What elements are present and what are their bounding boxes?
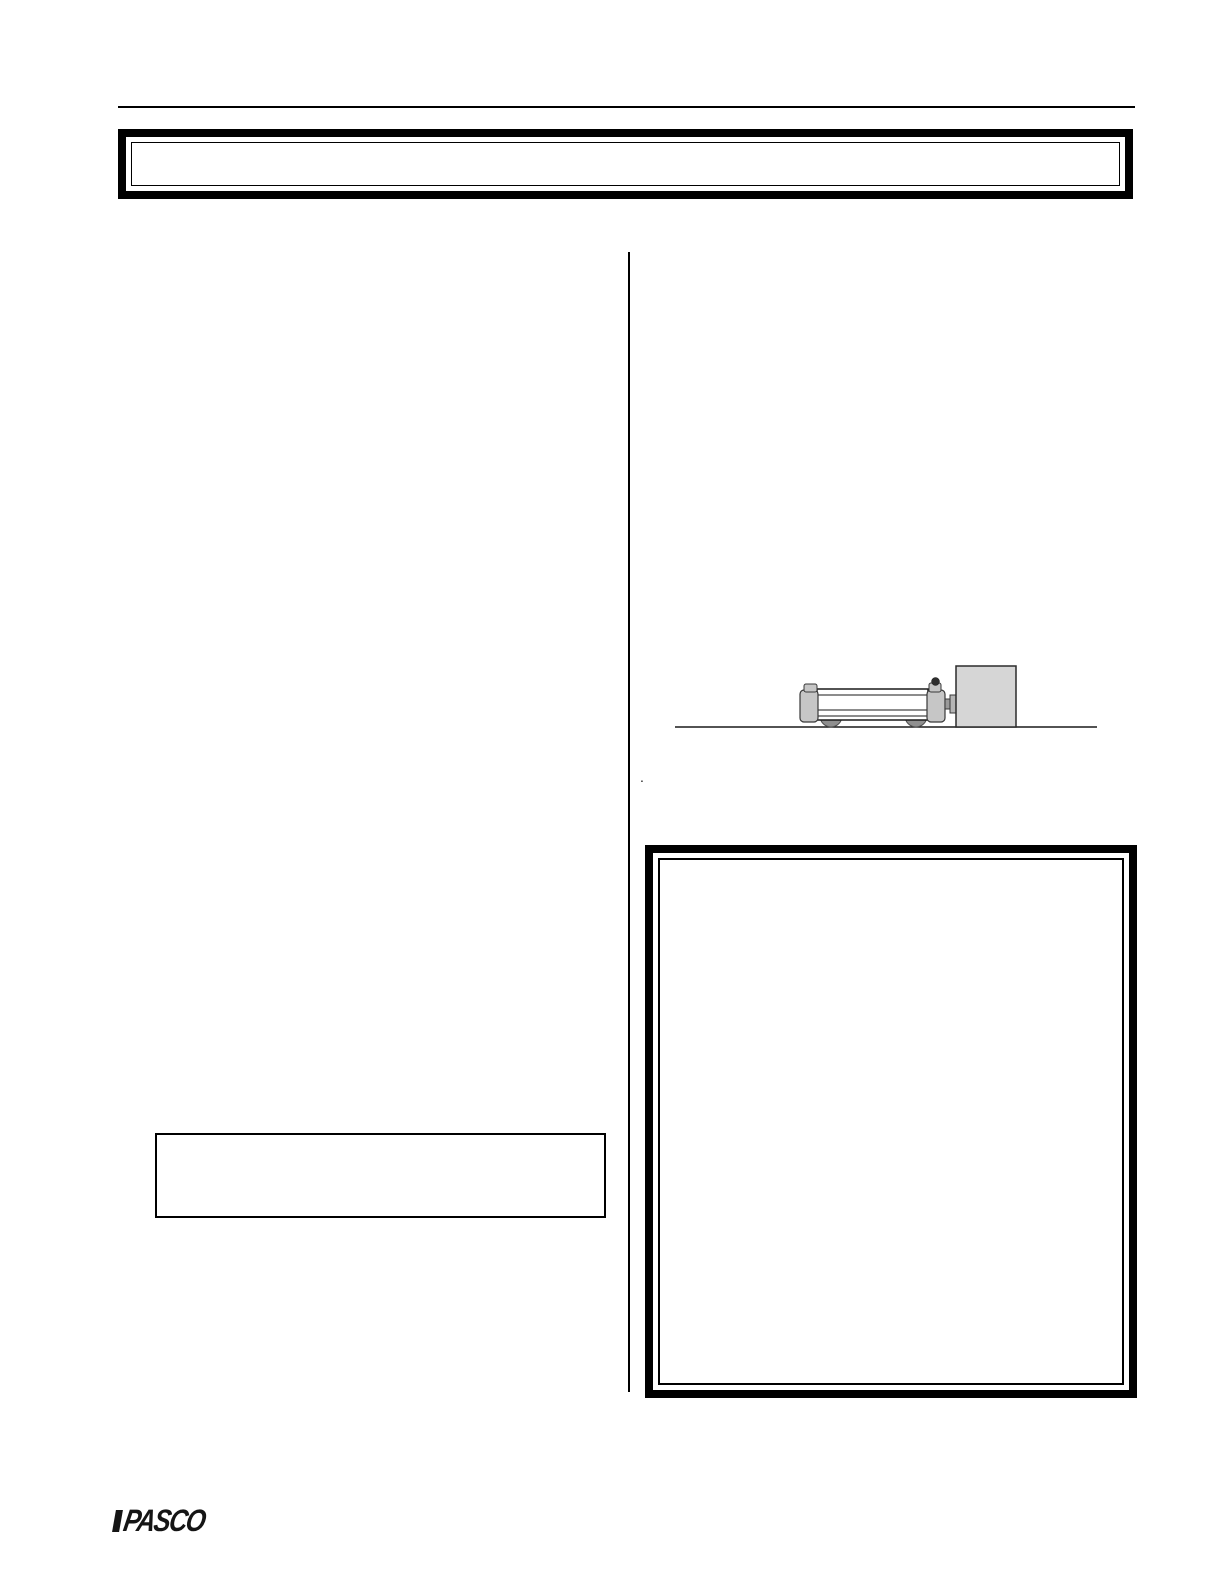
column-divider bbox=[628, 252, 630, 1392]
block bbox=[956, 666, 1016, 727]
cart-body bbox=[817, 689, 928, 720]
cart-endcap-right bbox=[927, 690, 945, 722]
header-rule bbox=[118, 106, 1135, 108]
pasco-logo-mark-icon bbox=[112, 1510, 123, 1532]
cart-tab-left bbox=[804, 684, 817, 692]
trigger-knob bbox=[932, 678, 940, 686]
title-banner bbox=[118, 129, 1133, 199]
left-callout-box bbox=[155, 1133, 606, 1218]
notes-box-inner bbox=[658, 858, 1124, 1385]
title-banner-inner bbox=[131, 142, 1120, 186]
plunger-rod bbox=[945, 699, 950, 709]
pasco-logo: PASCO bbox=[111, 1505, 225, 1537]
pasco-logo-text: PASCO bbox=[121, 1506, 207, 1536]
stray-period: . bbox=[640, 770, 644, 784]
cart-block-figure bbox=[670, 655, 1100, 735]
cart-endcap-left bbox=[800, 690, 818, 722]
document-page: . PASCO bbox=[0, 0, 1224, 1584]
notes-box bbox=[645, 845, 1137, 1398]
